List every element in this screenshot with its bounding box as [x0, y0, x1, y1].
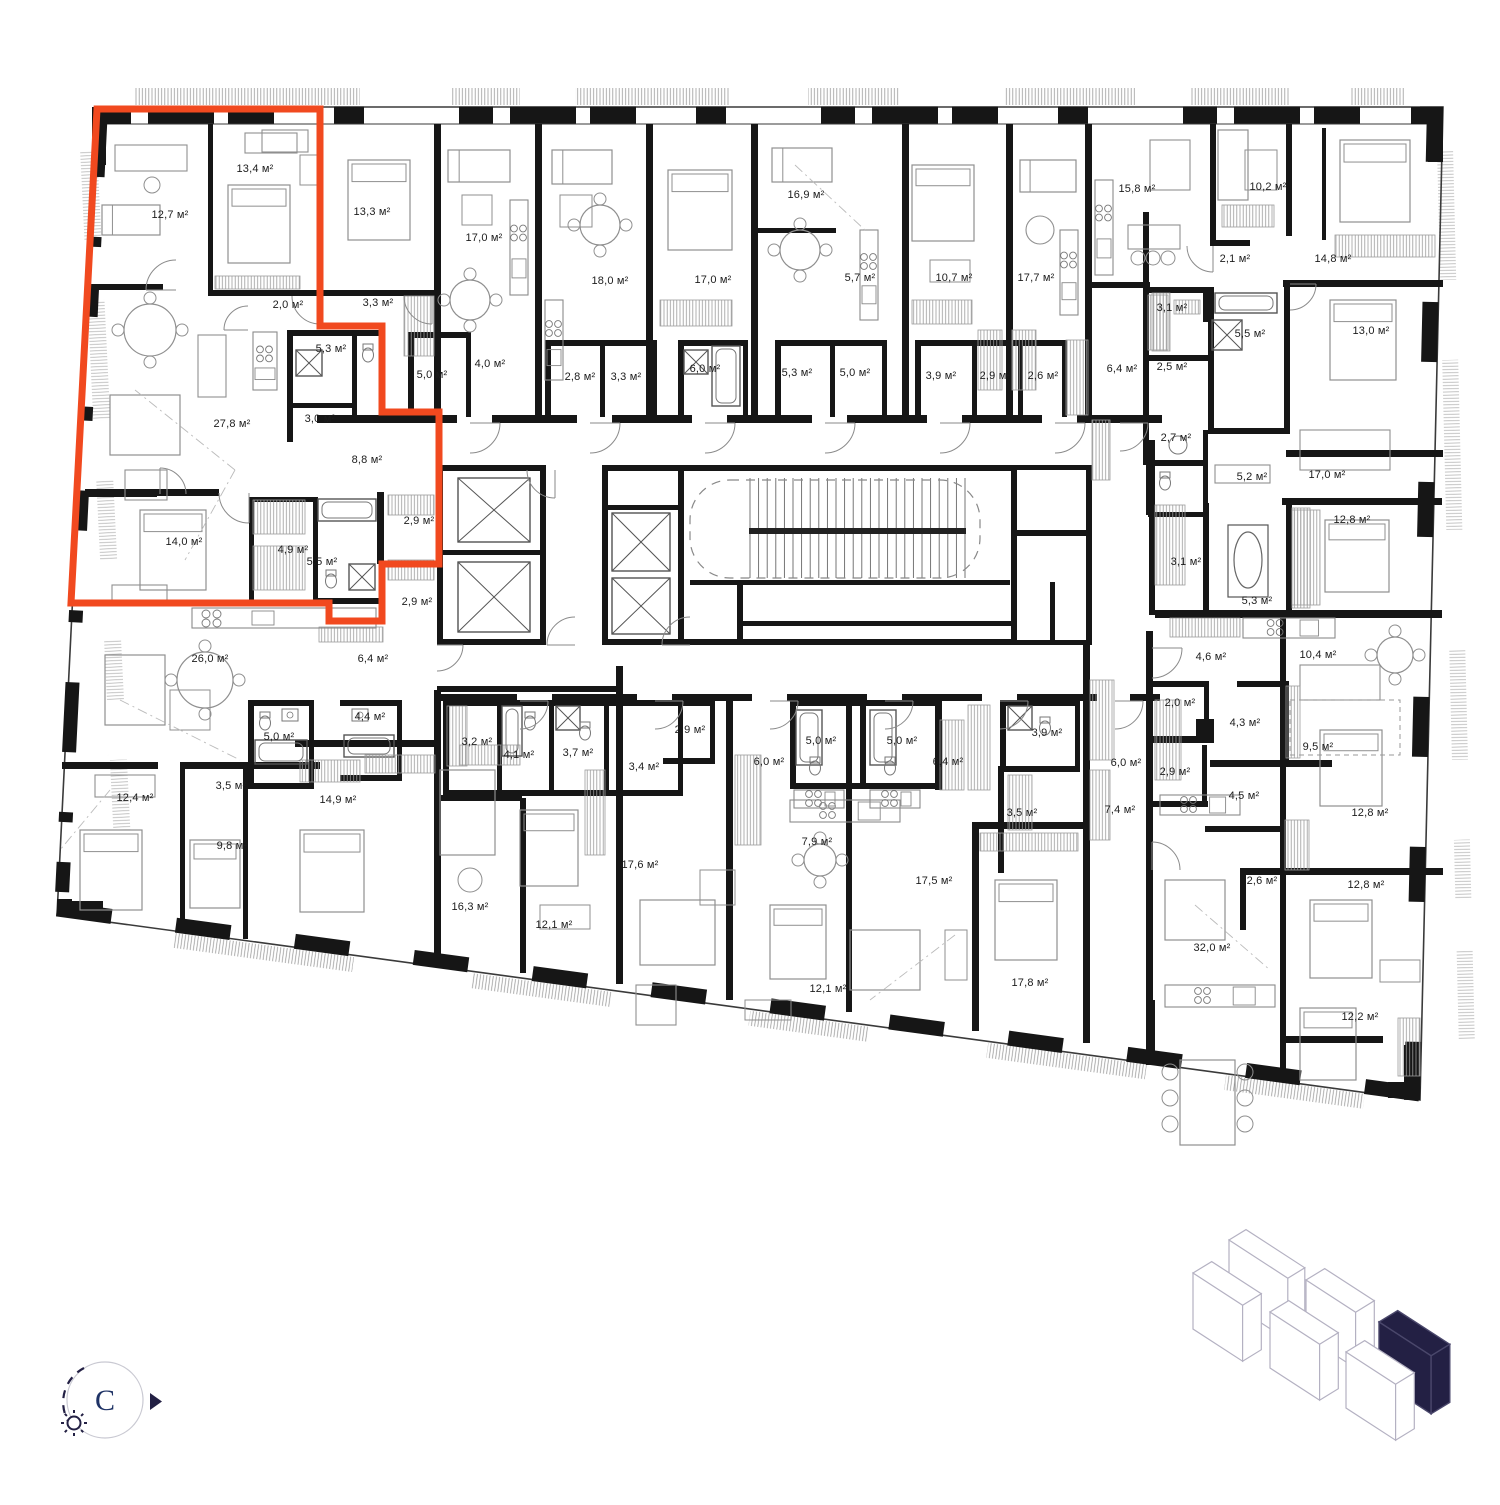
svg-text:4,4 м²: 4,4 м²: [355, 711, 386, 723]
svg-text:3,1 м²: 3,1 м²: [1171, 556, 1202, 568]
svg-text:3,3 м²: 3,3 м²: [611, 371, 642, 383]
svg-text:5,0 м²: 5,0 м²: [840, 367, 871, 379]
svg-text:8,8 м²: 8,8 м²: [352, 454, 383, 466]
svg-text:12,1 м²: 12,1 м²: [809, 983, 846, 995]
svg-text:4,9 м²: 4,9 м²: [278, 544, 309, 556]
svg-text:2,6 м²: 2,6 м²: [1028, 370, 1059, 382]
svg-text:12,4 м²: 12,4 м²: [116, 792, 153, 804]
svg-text:12,8 м²: 12,8 м²: [1351, 807, 1388, 819]
svg-text:2,1 м²: 2,1 м²: [1220, 253, 1251, 265]
svg-text:17,7 м²: 17,7 м²: [1017, 272, 1054, 284]
svg-text:3,9 м²: 3,9 м²: [926, 370, 957, 382]
svg-text:3,0 м²: 3,0 м²: [305, 413, 336, 425]
svg-text:14,9 м²: 14,9 м²: [319, 794, 356, 806]
svg-text:5,2 м²: 5,2 м²: [1237, 471, 1268, 483]
svg-text:3,2 м²: 3,2 м²: [462, 736, 493, 748]
svg-text:2,6 м²: 2,6 м²: [1247, 875, 1278, 887]
svg-text:13,0 м²: 13,0 м²: [1352, 325, 1389, 337]
svg-text:3,1 м²: 3,1 м²: [1157, 302, 1188, 314]
svg-text:2,9 м²: 2,9 м²: [675, 724, 706, 736]
svg-text:16,9 м²: 16,9 м²: [787, 189, 824, 201]
svg-text:5,5 м²: 5,5 м²: [1235, 328, 1266, 340]
svg-text:6,4 м²: 6,4 м²: [1107, 363, 1138, 375]
svg-text:16,3 м²: 16,3 м²: [451, 901, 488, 913]
svg-text:6,0 м²: 6,0 м²: [1111, 757, 1142, 769]
svg-text:17,0 м²: 17,0 м²: [1308, 469, 1345, 481]
svg-text:С: С: [95, 1384, 115, 1417]
svg-text:32,0 м²: 32,0 м²: [1193, 942, 1230, 954]
svg-text:5,3 м²: 5,3 м²: [782, 367, 813, 379]
svg-text:9,8 м²: 9,8 м²: [217, 840, 248, 852]
svg-text:17,0 м²: 17,0 м²: [694, 274, 731, 286]
svg-text:4,3 м²: 4,3 м²: [1230, 717, 1261, 729]
svg-text:2,9 м²: 2,9 м²: [980, 370, 1011, 382]
svg-text:3,5 м²: 3,5 м²: [216, 780, 247, 792]
svg-text:2,5 м²: 2,5 м²: [1157, 361, 1188, 373]
svg-text:3,7 м²: 3,7 м²: [563, 747, 594, 759]
svg-text:10,2 м²: 10,2 м²: [1249, 181, 1286, 193]
svg-text:17,6 м²: 17,6 м²: [621, 859, 658, 871]
svg-text:27,8 м²: 27,8 м²: [213, 418, 250, 430]
svg-text:12,8 м²: 12,8 м²: [1333, 514, 1370, 526]
svg-text:12,1 м²: 12,1 м²: [535, 919, 572, 931]
svg-text:13,3 м²: 13,3 м²: [353, 206, 390, 218]
svg-text:2,9 м²: 2,9 м²: [1160, 766, 1191, 778]
svg-text:4,6 м²: 4,6 м²: [1196, 651, 1227, 663]
svg-text:15,8 м²: 15,8 м²: [1118, 183, 1155, 195]
svg-text:26,0 м²: 26,0 м²: [191, 653, 228, 665]
svg-text:14,8 м²: 14,8 м²: [1314, 253, 1351, 265]
svg-text:18,0 м²: 18,0 м²: [591, 275, 628, 287]
svg-text:5,3 м²: 5,3 м²: [1242, 595, 1273, 607]
svg-text:4,0 м²: 4,0 м²: [475, 358, 506, 370]
svg-text:17,0 м²: 17,0 м²: [465, 232, 502, 244]
svg-text:17,5 м²: 17,5 м²: [915, 875, 952, 887]
svg-text:12,7 м²: 12,7 м²: [151, 209, 188, 221]
svg-text:2,0 м²: 2,0 м²: [1165, 697, 1196, 709]
svg-text:5,3 м²: 5,3 м²: [316, 343, 347, 355]
svg-text:3,4 м²: 3,4 м²: [629, 761, 660, 773]
svg-text:5,7 м²: 5,7 м²: [845, 272, 876, 284]
svg-text:6,4 м²: 6,4 м²: [933, 756, 964, 768]
svg-text:6,4 м²: 6,4 м²: [358, 653, 389, 665]
svg-text:6,0 м²: 6,0 м²: [690, 363, 721, 375]
svg-text:10,4 м²: 10,4 м²: [1299, 649, 1336, 661]
svg-text:2,9 м²: 2,9 м²: [404, 515, 435, 527]
svg-text:3,3 м²: 3,3 м²: [363, 297, 394, 309]
svg-text:3,9 м²: 3,9 м²: [1032, 727, 1063, 739]
svg-text:2,8 м²: 2,8 м²: [565, 371, 596, 383]
svg-text:7,9 м²: 7,9 м²: [802, 836, 833, 848]
svg-text:12,8 м²: 12,8 м²: [1347, 879, 1384, 891]
svg-text:5,5 м²: 5,5 м²: [307, 556, 338, 568]
svg-text:5,0 м²: 5,0 м²: [417, 369, 448, 381]
svg-text:12,2 м²: 12,2 м²: [1341, 1011, 1378, 1023]
svg-text:2,0 м²: 2,0 м²: [273, 299, 304, 311]
svg-text:14,0 м²: 14,0 м²: [165, 536, 202, 548]
svg-text:7,4 м²: 7,4 м²: [1105, 804, 1136, 816]
svg-text:5,0 м²: 5,0 м²: [887, 735, 918, 747]
svg-text:2,9 м²: 2,9 м²: [402, 596, 433, 608]
svg-text:13,4 м²: 13,4 м²: [236, 163, 273, 175]
svg-text:3,5 м²: 3,5 м²: [1007, 807, 1038, 819]
svg-text:5,0 м²: 5,0 м²: [264, 731, 295, 743]
svg-text:10,7 м²: 10,7 м²: [935, 272, 972, 284]
svg-text:17,8 м²: 17,8 м²: [1011, 977, 1048, 989]
svg-text:4,1 м²: 4,1 м²: [504, 749, 535, 761]
svg-text:5,0 м²: 5,0 м²: [806, 735, 837, 747]
svg-text:2,7 м²: 2,7 м²: [1161, 432, 1192, 444]
svg-text:6,0 м²: 6,0 м²: [754, 756, 785, 768]
svg-text:9,5 м²: 9,5 м²: [1303, 741, 1334, 753]
svg-text:4,5 м²: 4,5 м²: [1229, 790, 1260, 802]
